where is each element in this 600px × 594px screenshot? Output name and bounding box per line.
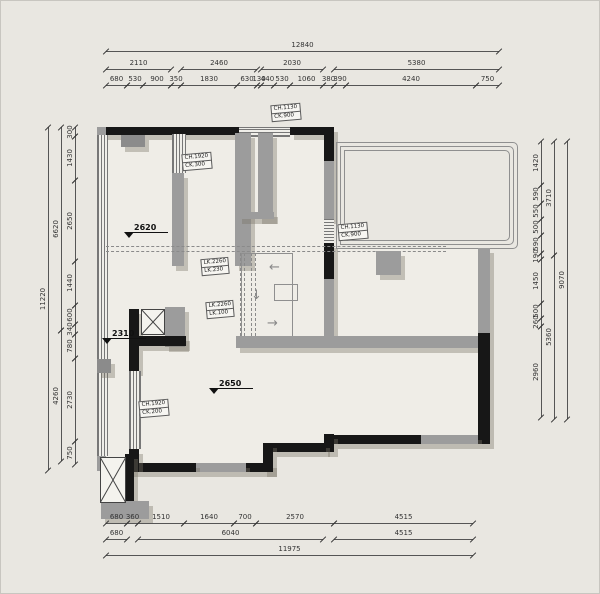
dimension-tick [124,536,130,542]
dimension-line [138,523,184,524]
dimension-label: 1640 [200,513,218,521]
arrow-right-icon: → [267,317,278,330]
dimension-label: 680 [110,529,123,537]
dimension-label: 680 [110,75,123,83]
dimension-label: 2030 [283,59,301,67]
dimension-line [541,326,542,417]
dimension-label: 590 [532,187,540,200]
dimension-line [106,539,127,540]
dimension-label: 900 [150,75,163,83]
dimension-line [256,523,334,524]
dimension-label: 1830 [200,75,218,83]
shaft2-box [100,457,126,503]
dimension-label: 440 [261,75,274,83]
spec-line-2: LK.230 [202,266,229,275]
level-marker: 2620 [126,222,168,233]
level-marker: 2650 [211,378,253,389]
dimension-label: 11975 [278,545,300,553]
dimension-tick [496,48,502,54]
dimension-label: 350 [169,75,182,83]
dimension-tick [496,82,502,88]
dimension-tick [496,66,502,72]
window-spec-label: CH.1920CK.300 [181,152,212,172]
dimension-line [106,69,171,70]
spec-line-2: CK.300 [183,161,211,170]
level-value: 2650 [219,379,241,388]
dimension-line [334,523,473,524]
beam-spec-label: LK.2260LK.100 [205,300,235,319]
dimension-label: 4260 [52,387,60,405]
spec-line-2: CK.900 [339,231,367,240]
dimension-line [181,85,237,86]
dimension-line [554,255,555,419]
dimension-label: 390 [333,75,346,83]
dimension-line [143,85,171,86]
dimension-line [106,85,127,86]
dimension-line [106,523,127,524]
shaft2-x-icon [100,457,126,503]
dimension-label: 12840 [291,41,313,49]
dimension-line [541,259,542,303]
level-triangle-icon [209,388,219,394]
dimension-label: 340 [66,322,74,335]
dimension-tick [538,414,544,420]
dimension-label: 1450 [532,272,540,290]
dimension-line [334,69,499,70]
dimension-line [75,441,76,464]
dimension-line [334,539,473,540]
dimension-line [106,51,499,52]
dimension-label: 2460 [210,59,228,67]
dimension-label: 6620 [52,220,60,238]
dimension-label: 360 [126,513,139,521]
level-value: 2310 [112,329,134,338]
dimension-tick [72,461,78,467]
dimension-line [554,141,555,255]
dimension-line [75,358,76,441]
dimension-label: 3710 [545,189,553,207]
dimension-line [184,523,234,524]
dimension-label: 1430 [66,149,74,167]
dimension-label: 4240 [402,75,420,83]
dimension-line [61,127,62,330]
dimension-line [75,261,76,305]
dimension-label: 750 [66,446,74,459]
dimension-label: 11220 [39,287,47,309]
dimension-line [541,141,542,185]
level-value: 2620 [134,223,156,232]
dimension-tick [564,416,570,422]
window-spec-label: CH.1130CK.900 [337,222,368,242]
dimension-tick [470,520,476,526]
dimension-label: 2570 [286,513,304,521]
level-marker: 2310 [104,328,146,339]
beam-spec-label: LK.2260LK.230 [200,257,230,276]
dimension-label: 530 [128,75,141,83]
level-triangle-icon [102,338,112,344]
spec-line-2: LK.100 [207,309,234,318]
dimension-label: 2960 [532,363,540,381]
window-spec-label: CH.1920CK.200 [138,399,169,419]
dimension-label: 1420 [532,154,540,172]
dimension-tick [320,66,326,72]
dimension-tick [45,467,51,473]
dimension-line [346,85,476,86]
dimension-tick [320,536,326,542]
dimension-label: 530 [275,75,288,83]
dimension-tick [470,552,476,558]
arrow-down-icon: ↓ [251,289,262,302]
floor-plan-canvas: 1284021102460203053806805309003501830630… [0,0,600,594]
dimension-label: 680 [110,513,123,521]
window-spec-label: CH.1130CK.900 [270,103,301,123]
dimension-line [290,85,323,86]
dimension-label: 750 [481,75,494,83]
dimension-line [234,523,256,524]
dimension-line [75,136,76,180]
dimension-line [476,85,499,86]
dimension-label: 2110 [130,59,148,67]
dimension-line [61,330,62,461]
dimension-label: 550 [532,204,540,217]
dimension-label: 780 [66,339,74,352]
dimension-tick [470,536,476,542]
dimension-label: 600 [66,308,74,321]
dimension-line [75,334,76,358]
dimension-line [106,555,473,556]
dimension-label: 2730 [66,391,74,409]
spec-line-2: CK.200 [140,408,168,417]
arrow-left-icon: ← [269,261,280,274]
dimension-label: 9070 [558,271,566,289]
dimension-tick [58,458,64,464]
dimension-label: 1440 [66,274,74,292]
dimension-line [138,539,323,540]
dimension-label: 5380 [408,59,426,67]
dimension-label: 6040 [222,529,240,537]
dimension-label: 1510 [152,513,170,521]
dimension-label: 500 [532,220,540,233]
dimension-label: 700 [238,513,251,521]
dimension-label: 5360 [545,328,553,346]
dimension-line [261,69,323,70]
level-triangle-icon [124,232,134,238]
dimension-line [75,180,76,261]
dimension-tick [551,416,557,422]
dimension-label: 1060 [298,75,316,83]
dimension-tick [168,66,174,72]
dimension-line [181,69,257,70]
annotations-layer: 1284021102460203053806805309003501830630… [1,1,599,593]
dimension-label: 4515 [395,513,413,521]
dimension-label: 2650 [66,212,74,230]
dimension-line [48,127,49,470]
spec-line-2: CK.900 [272,112,300,121]
dimension-label: 4515 [395,529,413,537]
dimension-line [567,141,568,419]
